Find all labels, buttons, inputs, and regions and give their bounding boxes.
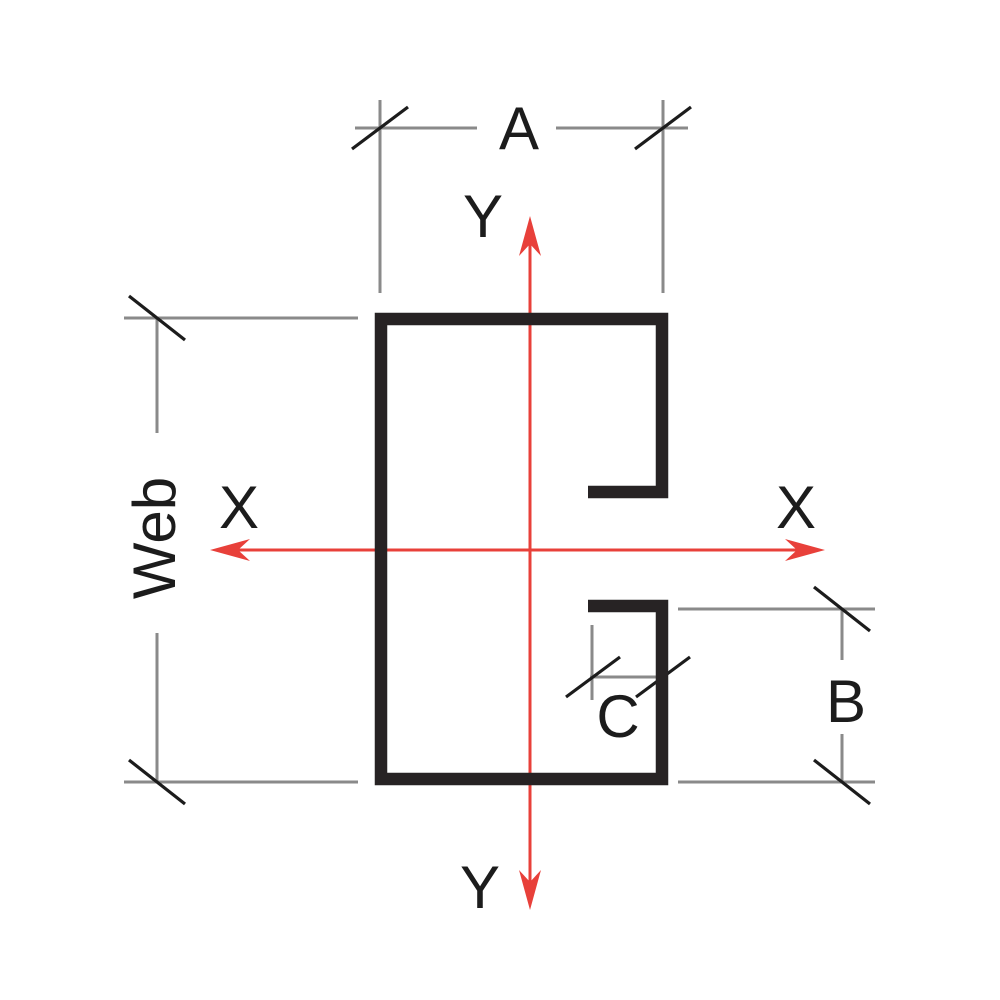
dimension-c: C	[566, 625, 690, 750]
cee-section-diagram: A Web B C	[0, 0, 1000, 1000]
dim-b-label: B	[826, 668, 866, 735]
y-axis-label-bottom: Y	[460, 854, 500, 921]
x-axis-label-right: X	[776, 474, 816, 541]
y-axis-label-top: Y	[463, 183, 503, 250]
x-axis-label-left: X	[219, 474, 259, 541]
dim-web-label: Web	[121, 477, 188, 599]
dim-a-label: A	[499, 95, 539, 162]
dim-c-label: C	[596, 683, 639, 750]
dimension-b: B	[678, 587, 875, 804]
dimension-a: A	[352, 95, 691, 293]
diagram-canvas: A Web B C	[0, 0, 1000, 1000]
